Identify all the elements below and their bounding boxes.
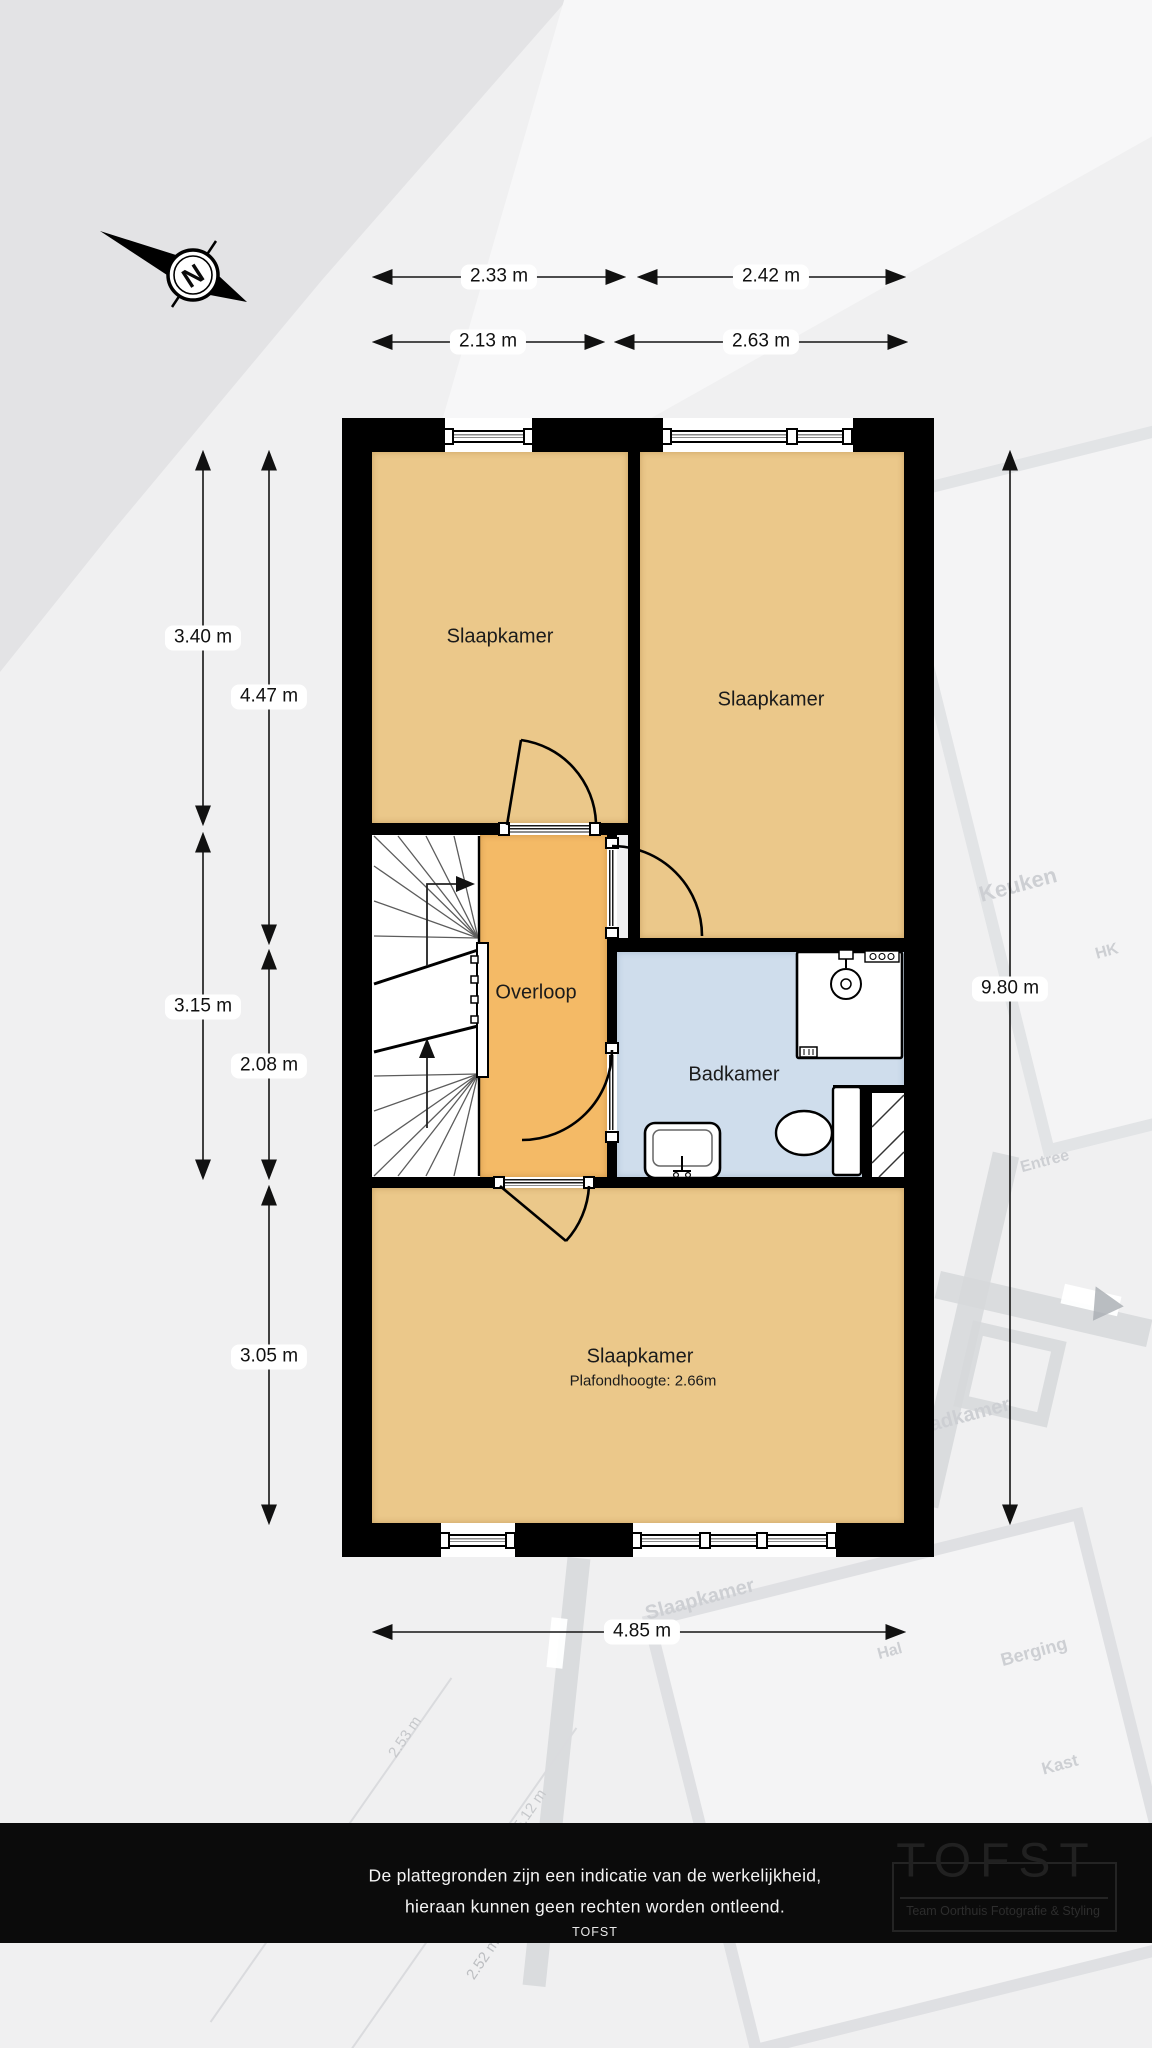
door-leafstripes (510, 825, 590, 833)
footer-disclaimer-line1: De plattegronden zijn een indicatie van … (369, 1866, 822, 1887)
footer-disclaimer-line2: hieraan kunnen geen rechten worden ontle… (405, 1897, 785, 1918)
wall-middle-bottom (372, 1177, 904, 1188)
wall-between-top-bedrooms (628, 452, 640, 938)
dimension-label-305: 3.05 m (231, 1345, 307, 1370)
wall-badkamer-top (617, 938, 904, 952)
footer-logo-divider (900, 1897, 1108, 1899)
wall-shaft-left (862, 1093, 872, 1177)
door-post (605, 837, 619, 849)
dimension-label-213: 2.13 m (450, 330, 526, 355)
door-post (605, 1131, 619, 1143)
room-overloop (480, 835, 607, 1177)
window-post (842, 428, 853, 445)
room-label-bedroom-bottom: Slaapkamer (587, 1346, 694, 1369)
window-post (439, 1532, 450, 1549)
room-label-badkamer: Badkamer (688, 1064, 779, 1087)
room-staircase (372, 835, 480, 1177)
outer-wall-left (342, 418, 372, 1557)
outer-wall-right (904, 418, 934, 1557)
room-label-bedroom-top-left: Slaapkamer (447, 626, 554, 649)
footer-brand-text: TOFST (572, 1925, 618, 1939)
dimension-label-340: 3.40 m (165, 626, 241, 651)
dimension-label-242: 2.42 m (733, 265, 809, 290)
window-mullion (786, 428, 798, 445)
window-top-left-frame (445, 430, 532, 443)
dimension-label-485: 4.85 m (604, 1620, 680, 1645)
door-post (498, 822, 510, 836)
background-dim-253: 2.53 m (385, 1713, 425, 1761)
window-post (505, 1532, 516, 1549)
door-post (605, 927, 619, 939)
dimension-label-263: 2.63 m (723, 330, 799, 355)
room-label-bedroom-top-right: Slaapkamer (718, 689, 825, 712)
window-post (523, 428, 534, 445)
window-mullion (699, 1532, 711, 1549)
wall-shaft-top (833, 1085, 904, 1093)
footer-bar: De plattegronden zijn een indicatie van … (0, 1823, 1152, 1943)
dimension-label-233: 2.33 m (461, 265, 537, 290)
dimension-label-980: 9.80 m (972, 977, 1048, 1002)
dimension-label-315: 3.15 m (165, 995, 241, 1020)
door-leafstripes (609, 1055, 615, 1130)
window-mullion (756, 1532, 768, 1549)
window-post (661, 428, 672, 445)
room-label-overloop: Overloop (495, 982, 576, 1005)
window-post (826, 1532, 837, 1549)
footer-logo-title: TOFST (896, 1834, 1097, 1889)
footer-logo-tagline: Team Oorthuis Fotografie & Styling (906, 1904, 1100, 1918)
door-post (605, 1042, 619, 1054)
window-bottom-right-frame (633, 1534, 836, 1547)
door-post (589, 822, 601, 836)
door-post (493, 1176, 505, 1189)
room-note-ceiling-height: Plafondhoogte: 2.66m (570, 1373, 717, 1390)
window-bottom-left-frame (441, 1534, 515, 1547)
window-post (631, 1532, 642, 1549)
floorplan-page: Keuken HK Entree Badkamer Slaapkamer Hal… (0, 0, 1152, 2048)
window-top-right-frame (663, 430, 853, 443)
door-post (583, 1176, 595, 1189)
door-leafstripes (505, 1179, 583, 1186)
door-leafstripes (609, 850, 615, 926)
window-post (443, 428, 454, 445)
dimension-label-208: 2.08 m (231, 1054, 307, 1079)
dimension-label-447: 4.47 m (231, 685, 307, 710)
